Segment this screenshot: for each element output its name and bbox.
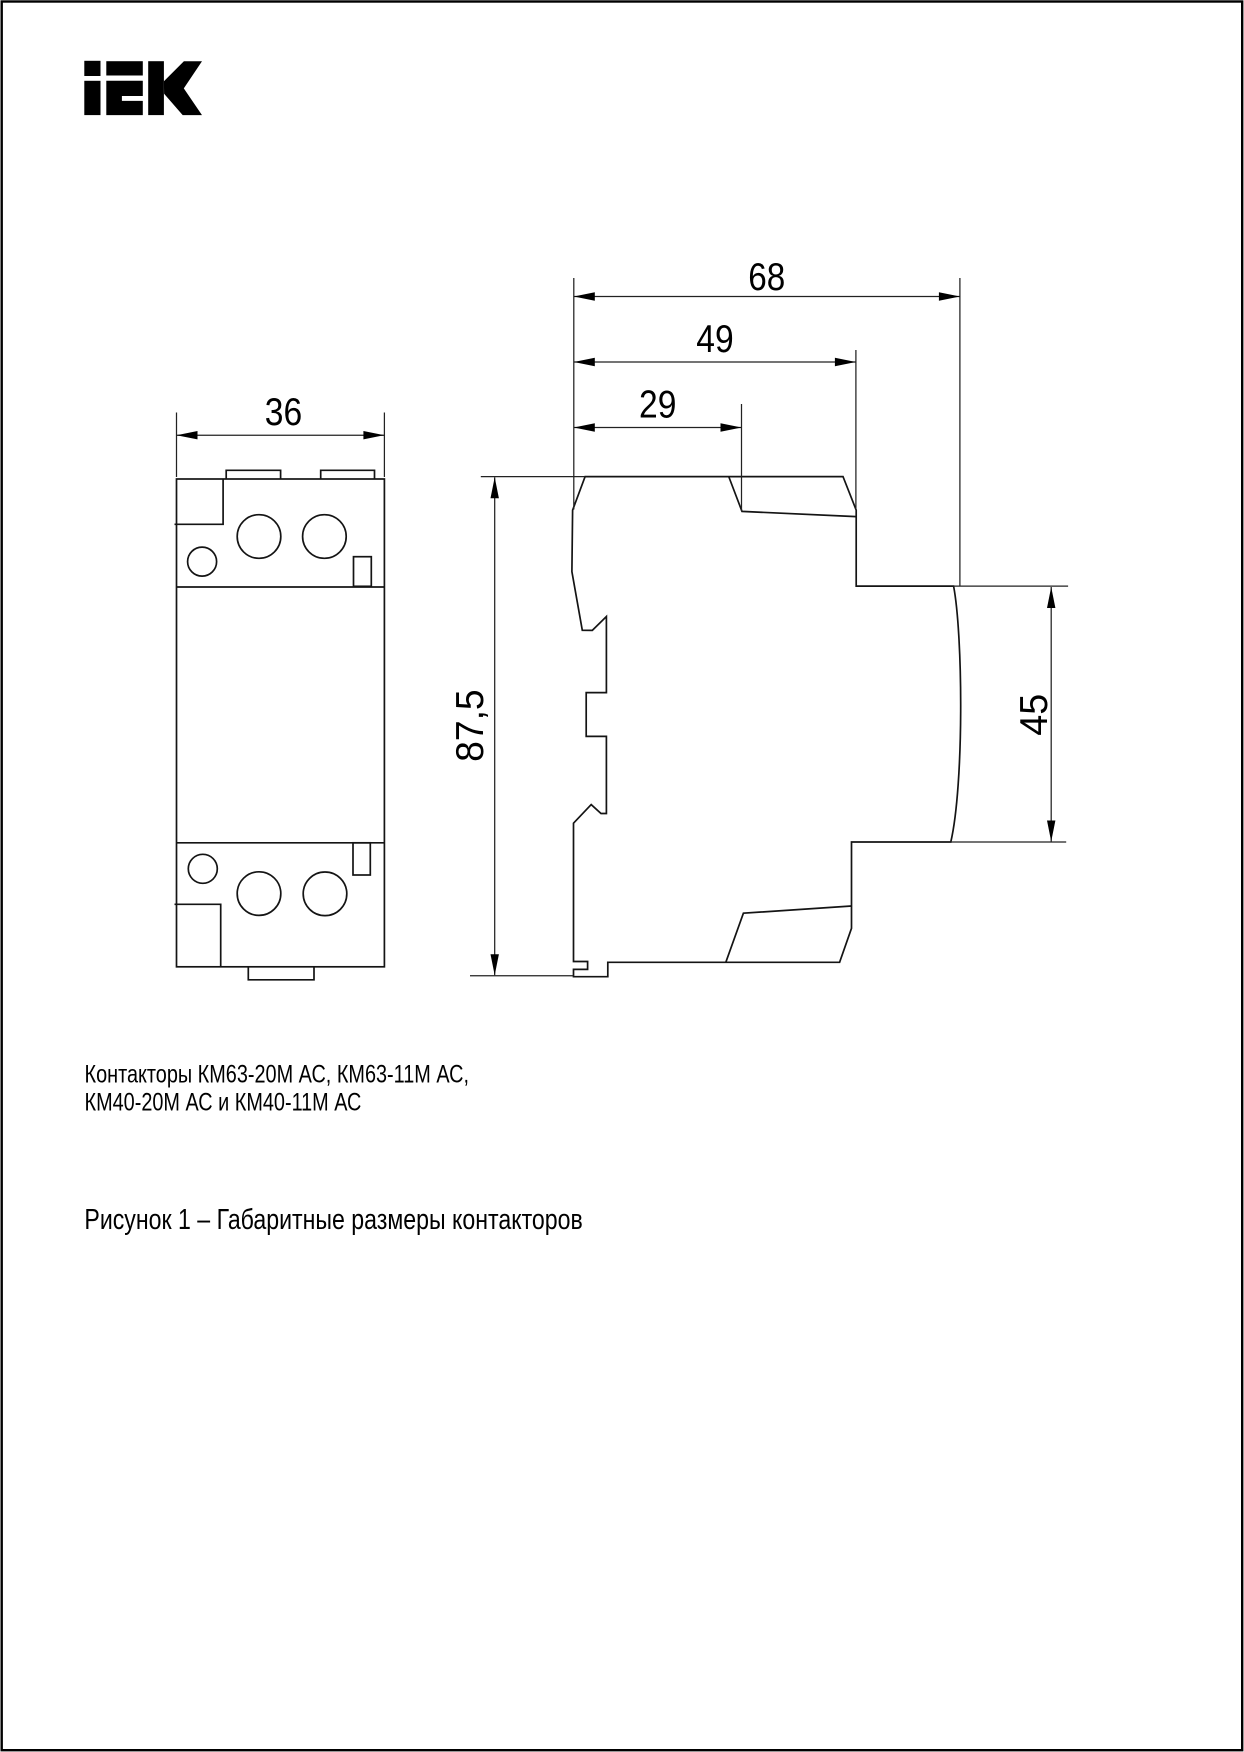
svg-text:49: 49 bbox=[696, 318, 733, 361]
svg-text:45: 45 bbox=[1013, 694, 1056, 736]
svg-text:Рисунок 1 – Габаритные размеры: Рисунок 1 – Габаритные размеры контактор… bbox=[84, 1204, 582, 1236]
svg-text:68: 68 bbox=[748, 256, 785, 299]
svg-text:29: 29 bbox=[639, 383, 676, 426]
svg-text:Контакторы КМ63-20М АС, КМ63-1: Контакторы КМ63-20М АС, КМ63-11М АС, bbox=[85, 1060, 470, 1088]
svg-text:36: 36 bbox=[265, 391, 302, 434]
svg-text:87,5: 87,5 bbox=[449, 689, 492, 762]
svg-text:КМ40-20М АС и КМ40-11М АС: КМ40-20М АС и КМ40-11М АС bbox=[85, 1089, 362, 1117]
